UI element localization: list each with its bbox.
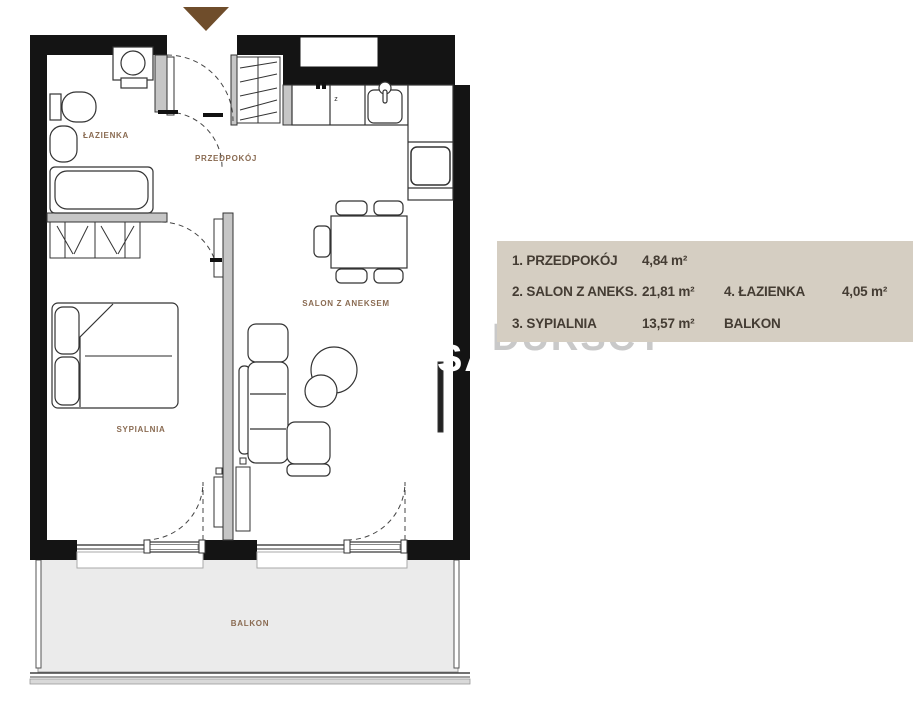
chair: [374, 269, 403, 283]
toilet: [50, 92, 96, 122]
legend-row1-label2: [724, 254, 842, 268]
label-salon: SALON Z ANEKSEM: [302, 299, 390, 308]
sink: [50, 126, 77, 162]
legend-panel: 1. PRZEDPOKÓJ 4,84 m² 2. SALON Z ANEKS. …: [497, 241, 913, 342]
sofa-corner-arm: [287, 464, 330, 476]
bed: [52, 303, 178, 408]
window-sill: [257, 552, 407, 568]
living-balcony-swing: [347, 482, 405, 540]
interior-walls: [47, 55, 292, 540]
bedroom-wardrobe: [50, 222, 140, 258]
hallway-wardrobe: [237, 57, 280, 123]
kitchen-wall-stub: [283, 85, 292, 125]
legend-row2-label2: 4. ŁAZIENKA: [724, 285, 842, 299]
bedroom-balcony-swing: [145, 482, 203, 540]
legend-row2-value: 21,81 m²: [642, 285, 724, 299]
watermark-text-sa: SA: [437, 338, 494, 381]
sofa-section: [248, 324, 288, 362]
washing-machine: [113, 47, 153, 88]
chair: [336, 201, 367, 215]
sofa-body: [248, 362, 288, 463]
entrance-arrow-icon: [183, 7, 229, 31]
chair: [336, 269, 367, 283]
legend-row1-value: 4,84 m²: [642, 254, 724, 268]
legend-row1-label: 1. PRZEDPOKÓJ: [512, 254, 642, 268]
door-swings: [145, 55, 405, 540]
bedroom-furniture: [50, 222, 178, 408]
pillow: [55, 307, 79, 354]
coffee-table-small: [305, 375, 337, 407]
bedroom-door-leaf: [214, 219, 223, 277]
shaft-recess: [300, 37, 378, 67]
bathroom-bottom-wall: [47, 213, 167, 222]
middle-wall: [223, 213, 233, 540]
pillow: [55, 357, 79, 405]
bathroom-fixtures: [50, 47, 153, 213]
legend-row3-value: 13,57 m²: [642, 317, 724, 331]
hall-wardrobe-stub: [231, 55, 237, 125]
legend-row3-label: 3. SYPIALNIA: [512, 317, 642, 331]
fridge: [411, 147, 450, 185]
bedroom-balcony-door: [144, 540, 205, 553]
cooktop-mark: z: [334, 96, 338, 103]
label-sypialnia: SYPIALNIA: [117, 425, 166, 434]
bathtub: [50, 167, 153, 213]
bedroom-door-swing: [161, 222, 218, 279]
bathroom-right-wall: [155, 55, 167, 112]
window-sill: [77, 552, 203, 568]
door-leaves: [158, 57, 223, 277]
chair: [314, 226, 330, 257]
floorplan-page: ŁAZIENKA PRZEDPOKÓJ SALON Z ANEKSEM SYPI…: [0, 0, 913, 712]
legend-row2-value2: 4,05 m²: [842, 285, 887, 299]
kitchen: [292, 82, 453, 200]
label-lazienka: ŁAZIENKA: [83, 131, 129, 140]
sofa-group: [239, 324, 357, 476]
dining-set: [314, 201, 407, 283]
chair: [374, 201, 403, 215]
living-balcony-door: [344, 540, 407, 553]
entrance-door-leaf: [167, 57, 174, 115]
legend-row2-label: 2. SALON Z ANEKS.: [512, 285, 642, 299]
dining-table: [331, 216, 407, 268]
legend-row3-label2: BALKON: [724, 317, 842, 331]
label-przedpokoj: PRZEDPOKÓJ: [195, 154, 257, 163]
sofa-corner-seat: [287, 422, 330, 464]
label-balkon: BALKON: [231, 619, 269, 628]
